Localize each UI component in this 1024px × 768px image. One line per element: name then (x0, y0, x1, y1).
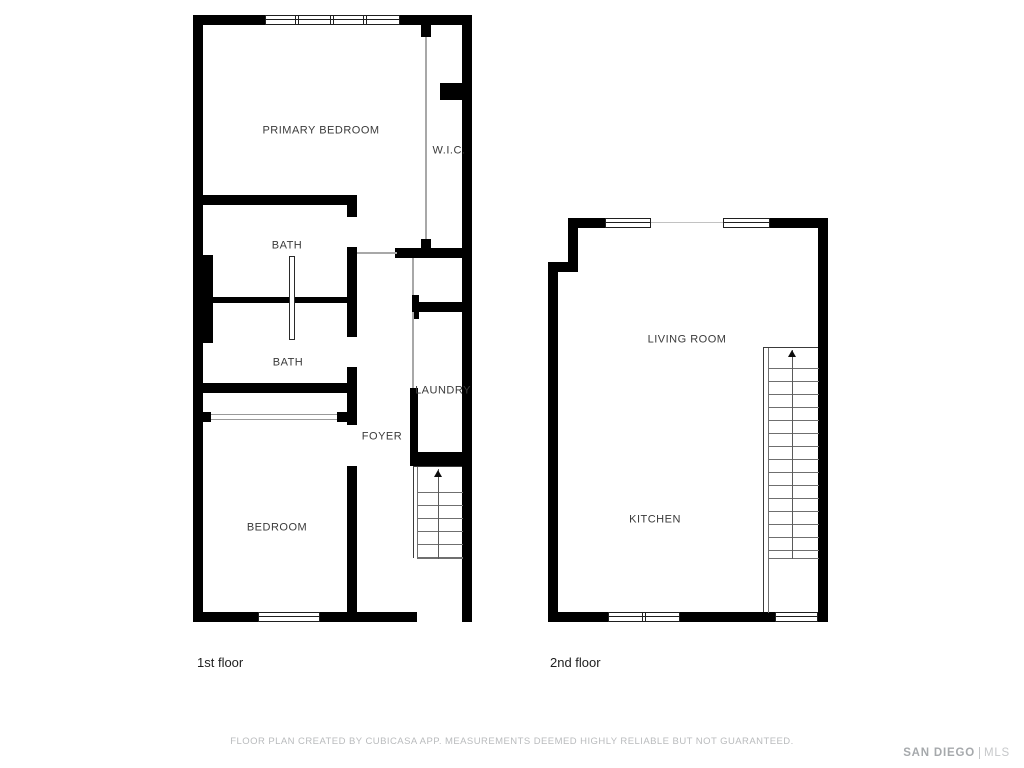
wall (347, 466, 357, 622)
wall (193, 383, 357, 393)
wall (337, 412, 349, 422)
wall-chimney (195, 255, 213, 343)
laundry-line (412, 312, 414, 392)
wall (193, 195, 357, 205)
stairs (413, 466, 462, 558)
window (608, 612, 680, 622)
window (775, 612, 818, 622)
wall (680, 612, 775, 622)
room-label-laundry: LAUNDRY (415, 386, 471, 397)
room-label-kitchen: KITCHEN (629, 515, 681, 526)
closet-doors (205, 414, 339, 420)
wall (412, 302, 472, 312)
stairs (763, 347, 818, 612)
wic-divider-line (425, 25, 427, 243)
opening-line (357, 252, 397, 254)
mls-logo: SAN DIEGO MLS (903, 747, 1010, 759)
room-label-foyer: FOYER (362, 432, 402, 443)
window (605, 218, 651, 228)
second-floor-plan: LIVING ROOM KITCHEN (548, 218, 828, 622)
wall (347, 247, 357, 337)
wall (548, 262, 558, 622)
first-floor-plan: PRIMARY BEDROOM W.I.C. BATH BATH LAUNDRY… (193, 15, 472, 622)
floor-plan-page: PRIMARY BEDROOM W.I.C. BATH BATH LAUNDRY… (0, 0, 1024, 768)
wall (410, 452, 472, 466)
window-mullion (295, 16, 299, 24)
wall (548, 612, 608, 622)
mls-logo-separator (979, 747, 980, 759)
mls-logo-primary-text: SAN DIEGO (903, 747, 975, 759)
wall (203, 412, 211, 422)
stair-direction-line (438, 469, 439, 559)
room-label-bedroom: BEDROOM (247, 523, 307, 534)
window-mullion (330, 16, 334, 24)
room-label-bath-upper: BATH (272, 241, 303, 252)
window-mullion (642, 613, 646, 621)
mls-logo-secondary-text: MLS (984, 747, 1010, 759)
wall (193, 15, 265, 25)
stair-treads (769, 356, 819, 559)
window-mullion (363, 16, 367, 24)
pocket-door (289, 256, 295, 340)
second-floor-caption: 2nd floor (550, 655, 601, 670)
window (723, 218, 770, 228)
window (265, 15, 400, 25)
window (258, 612, 320, 622)
room-label-living-room: LIVING ROOM (648, 335, 727, 346)
disclaimer-text: FLOOR PLAN CREATED BY CUBICASA APP. MEAS… (0, 736, 1024, 747)
wall (421, 25, 431, 37)
wall (347, 195, 357, 217)
wall (213, 297, 357, 303)
wall-opening (651, 218, 723, 228)
wall (462, 15, 472, 622)
room-label-primary-bedroom: PRIMARY BEDROOM (262, 126, 379, 137)
wall (440, 83, 462, 100)
stair-treads (418, 480, 463, 559)
wall (818, 218, 828, 622)
room-label-bath-lower: BATH (273, 358, 304, 369)
stairs-up-arrow-icon (788, 350, 796, 357)
room-label-wic: W.I.C. (433, 146, 466, 157)
stair-direction-line (792, 350, 793, 559)
wall (395, 248, 472, 258)
stairs-up-arrow-icon (434, 470, 442, 477)
first-floor-caption: 1st floor (197, 655, 243, 670)
